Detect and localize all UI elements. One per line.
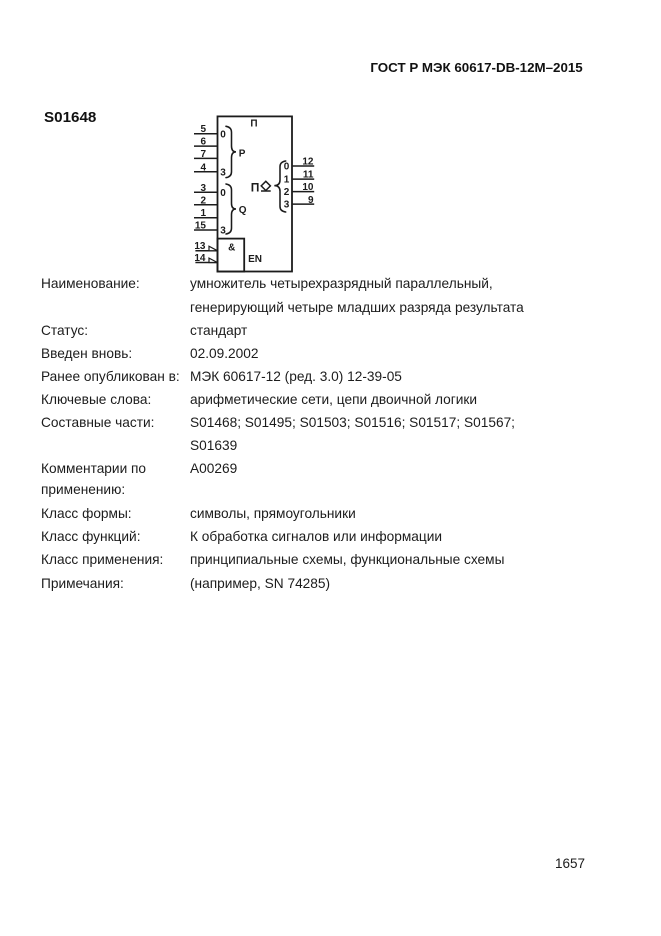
svg-text:1: 1 xyxy=(200,208,206,219)
svg-text:3: 3 xyxy=(284,200,290,211)
svg-text:Q: Q xyxy=(239,205,247,216)
svg-text:10: 10 xyxy=(302,182,314,193)
svg-text:11: 11 xyxy=(303,170,314,181)
svg-text:P: P xyxy=(239,148,246,159)
svg-text:15: 15 xyxy=(195,221,207,232)
svg-text:2: 2 xyxy=(200,195,206,206)
svg-text:4: 4 xyxy=(200,162,206,173)
svg-text:0: 0 xyxy=(220,188,226,199)
svg-text:6: 6 xyxy=(200,137,206,148)
svg-text:9: 9 xyxy=(308,195,314,206)
svg-text:5: 5 xyxy=(200,124,206,135)
svg-text:3: 3 xyxy=(220,167,226,178)
svg-text:EN: EN xyxy=(248,254,262,265)
svg-text:13: 13 xyxy=(194,241,206,252)
svg-text:П: П xyxy=(251,180,260,194)
svg-text:3: 3 xyxy=(200,183,206,194)
svg-text:3: 3 xyxy=(220,226,226,237)
svg-text:&: & xyxy=(228,243,235,254)
svg-text:0: 0 xyxy=(220,129,226,140)
svg-text:1: 1 xyxy=(284,175,290,186)
svg-text:0: 0 xyxy=(284,162,290,173)
svg-text:14: 14 xyxy=(194,253,206,264)
svg-text:7: 7 xyxy=(200,149,206,160)
svg-text:12: 12 xyxy=(302,156,314,167)
svg-text:2: 2 xyxy=(284,187,290,198)
svg-text:П: П xyxy=(250,119,257,130)
